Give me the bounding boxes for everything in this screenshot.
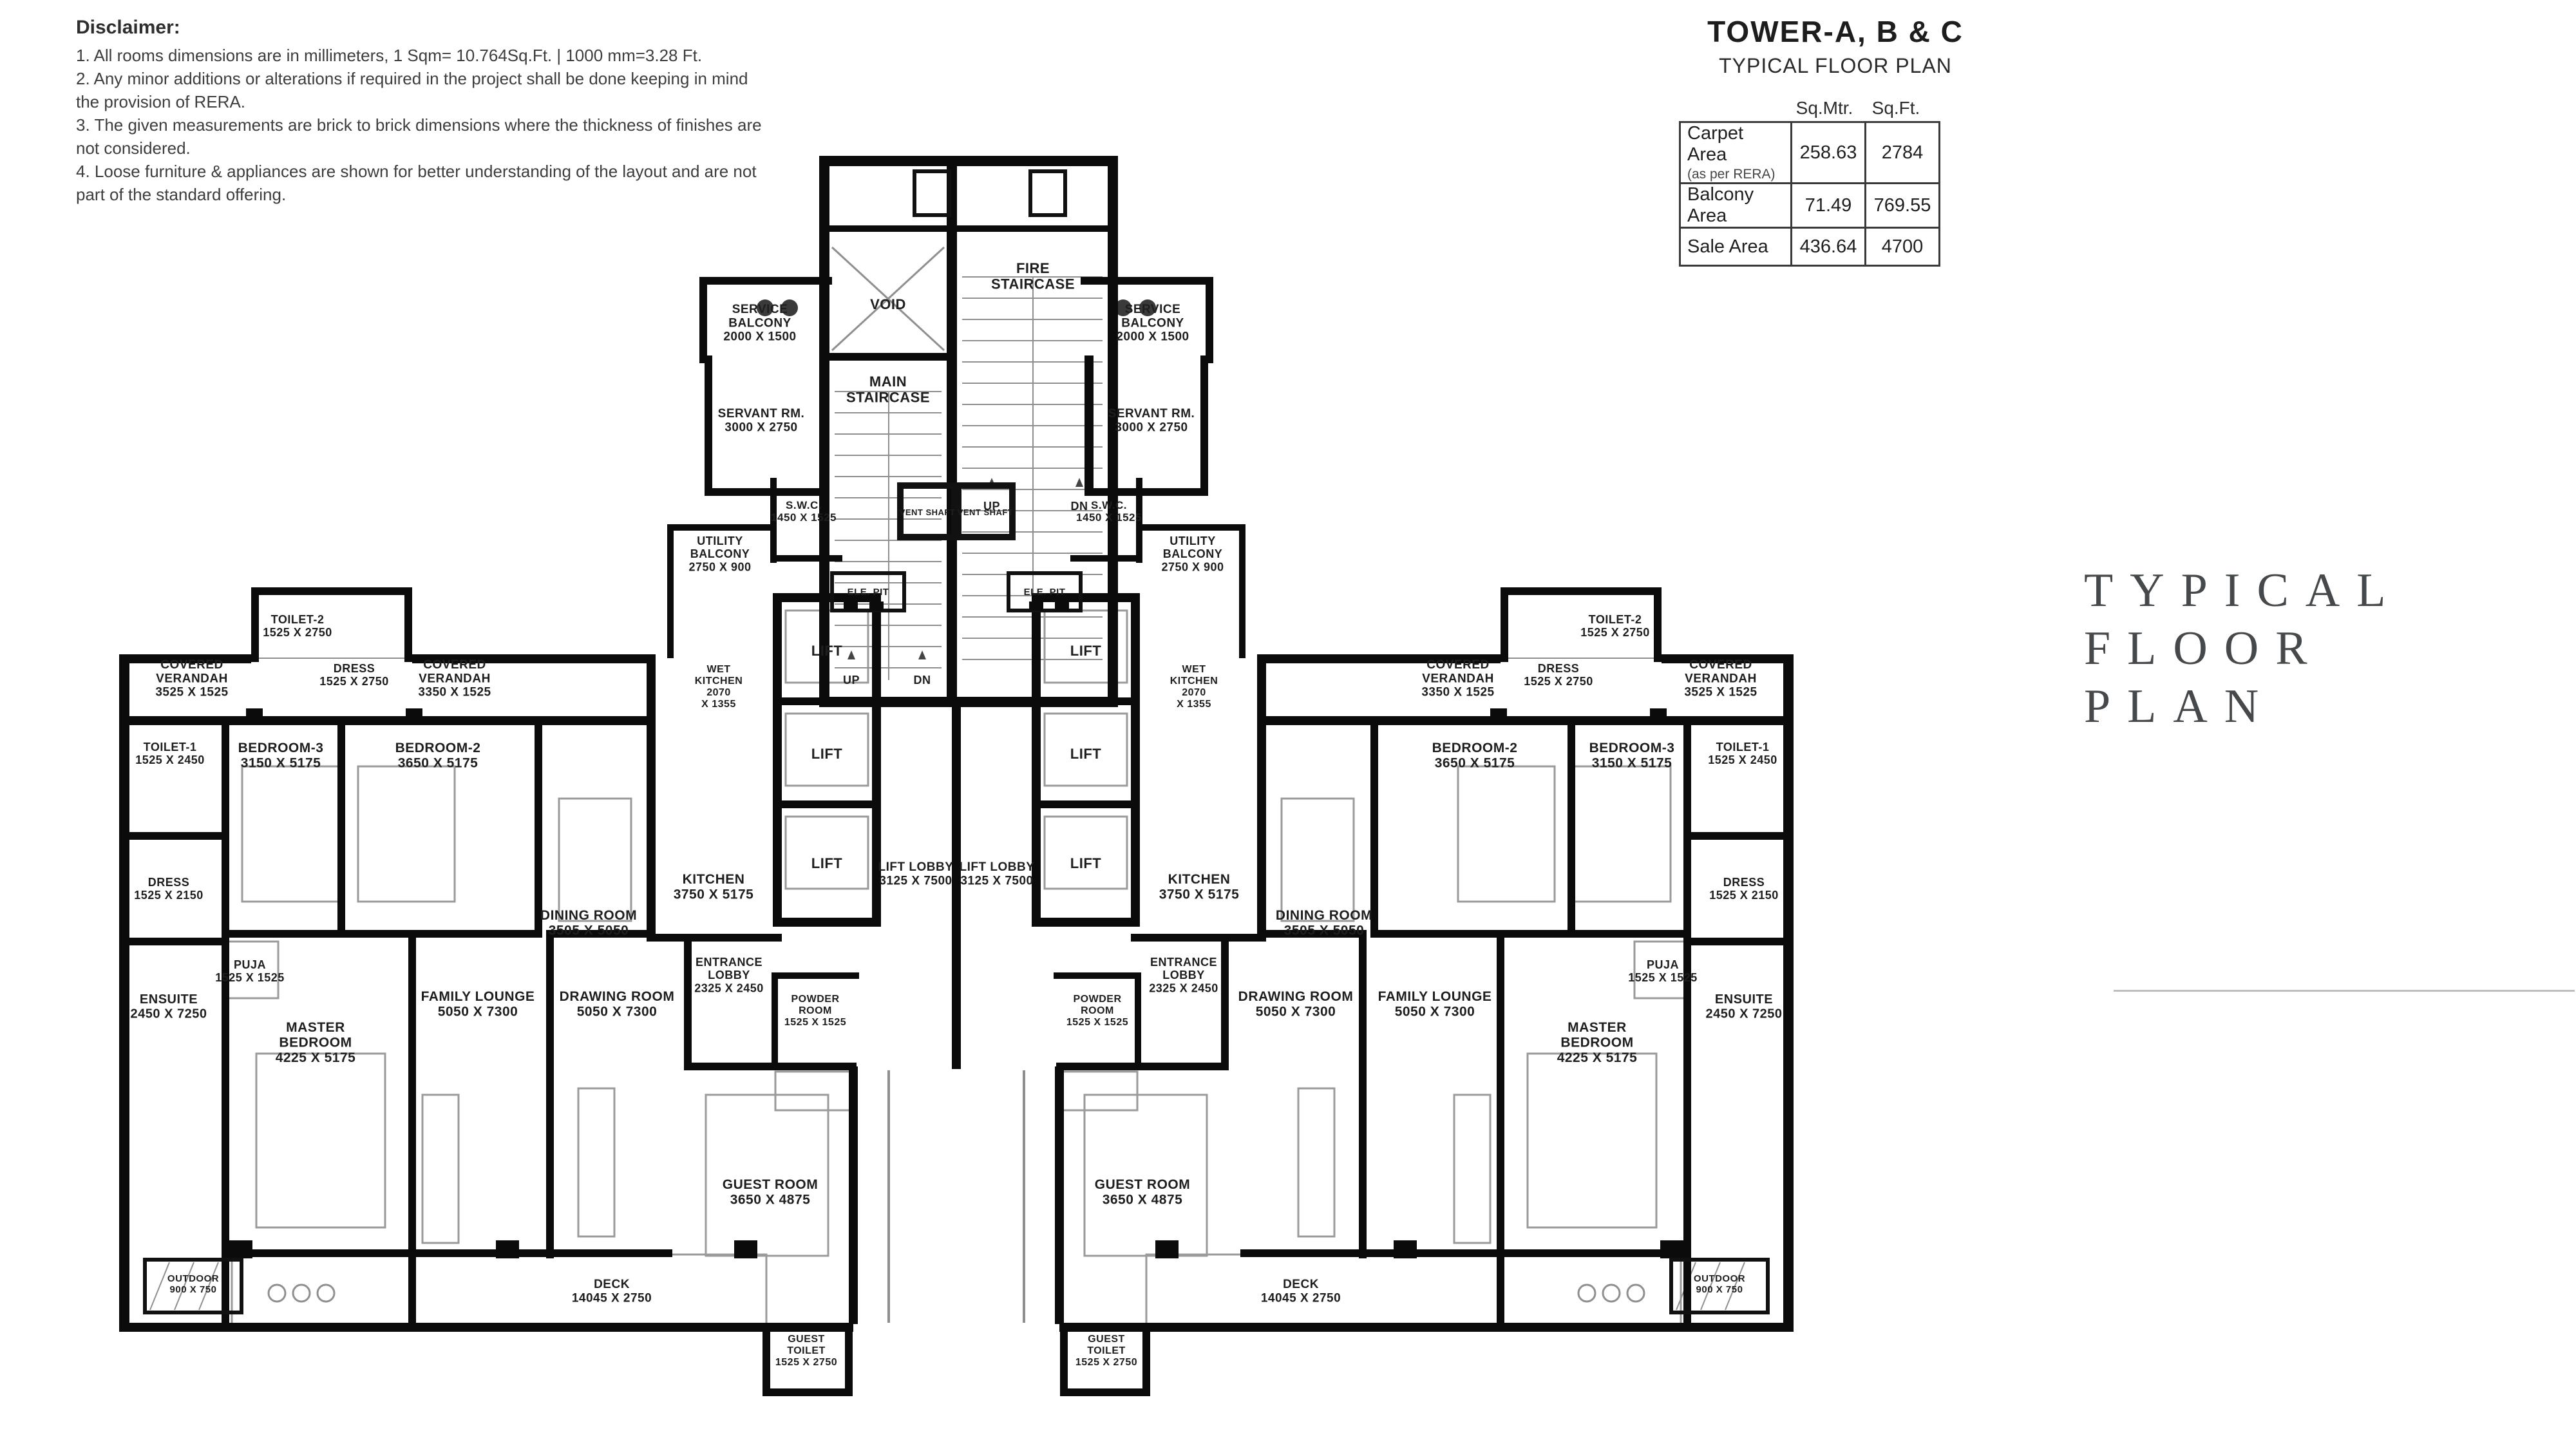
room-label: SERVANT RM.3000 X 2750 [1108,407,1195,434]
room-label: POWDERROOM1525 X 1525 [1066,994,1128,1028]
room-label: POWDERROOM1525 X 1525 [784,994,846,1028]
room-label: DRAWING ROOM5050 X 7300 [1238,989,1354,1019]
room-label: DINING ROOM3505 X 5050 [1276,908,1372,938]
room-label: UTILITYBALCONY2750 X 900 [1161,535,1224,573]
room-label: ENTRANCELOBBY2325 X 2450 [1149,956,1218,994]
room-label: UP [843,674,860,687]
room-label: SERVANT RM.3000 X 2750 [718,407,805,434]
room-label: DN [1071,500,1088,513]
room-label: ENTRANCELOBBY2325 X 2450 [694,956,764,994]
room-label: LIFT [1070,855,1101,871]
room-label: FAMILY LOUNGE5050 X 7300 [1378,989,1492,1019]
room-label: TOILET-11525 X 2450 [1708,741,1777,766]
room-label: BEDROOM-33150 X 5175 [1589,741,1675,771]
room-label: KITCHEN3750 X 5175 [674,872,754,902]
room-label: MASTERBEDROOM4225 X 5175 [276,1020,356,1065]
room-label: OUTDOOR900 X 750 [167,1273,219,1295]
room-label: LIFT [1070,643,1101,659]
room-label: VENT SHAFT [958,507,1014,517]
brochure-page: Disclaimer: 1. All rooms dimensions are … [0,0,2576,1449]
room-label: GUESTTOILET1525 X 2750 [775,1334,837,1368]
room-label: TOILET-21525 X 2750 [1580,613,1650,639]
room-label: FIRESTAIRCASE [991,260,1075,292]
room-label: ELE. PIT [1024,587,1066,598]
room-label: LIFT [811,643,842,659]
room-label: DRAWING ROOM5050 X 7300 [560,989,675,1019]
room-label: ENSUITE2450 X 7250 [131,992,207,1021]
room-label: LIFT [1070,746,1101,762]
room-label: DRESS1525 X 2750 [1524,662,1593,688]
room-label: UTILITYBALCONY2750 X 900 [688,535,751,573]
room-label: DRESS1525 X 2750 [319,662,389,688]
room-label: OUTDOOR900 X 750 [1694,1273,1745,1295]
room-label: BEDROOM-23650 X 5175 [1432,741,1518,771]
room-label: ELE. PIT [848,587,889,598]
room-label: GUEST ROOM3650 X 4875 [723,1177,819,1207]
room-label: DRESS1525 X 2150 [1709,876,1779,902]
room-label: BEDROOM-23650 X 5175 [395,741,481,771]
room-label: TOILET-11525 X 2450 [135,741,205,766]
room-label: COVEREDVERANDAH3525 X 1525 [155,658,228,699]
room-label: DRESS1525 X 2150 [134,876,204,902]
room-label: LIFT [811,746,842,762]
room-label: DN [914,674,931,687]
room-label: DECK14045 X 2750 [572,1278,652,1305]
room-label: DECK14045 X 2750 [1261,1278,1341,1305]
room-label: VENT SHAFT [900,507,956,517]
room-label: MASTERBEDROOM4225 X 5175 [1557,1020,1638,1065]
room-label: GUESTTOILET1525 X 2750 [1075,1334,1137,1368]
room-label: BEDROOM-33150 X 5175 [238,741,324,771]
room-label: MAINSTAIRCASE [846,374,930,406]
room-label: DINING ROOM3505 X 5050 [540,908,637,938]
room-label: KITCHEN3750 X 5175 [1159,872,1240,902]
floor-plan-svg: VOIDMAINSTAIRCASEFIRESTAIRCASEUPDNUPDNSE… [0,0,2576,1449]
room-label: TOILET-21525 X 2750 [263,613,332,639]
room-label: WETKITCHEN2070X 1355 [695,664,743,710]
room-label: FAMILY LOUNGE5050 X 7300 [421,989,535,1019]
room-label: COVEREDVERANDAH3350 X 1525 [418,658,491,699]
room-label: COVEREDVERANDAH3350 X 1525 [1421,658,1494,699]
room-label: WETKITCHEN2070X 1355 [1170,664,1218,710]
room-label: COVEREDVERANDAH3525 X 1525 [1684,658,1757,699]
room-label: LIFT LOBBY3125 X 7500 [878,860,954,887]
room-label: SERVICEBALCONY2000 X 1500 [1116,303,1189,344]
room-label: VOID [870,296,906,312]
room-label: SERVICEBALCONY2000 X 1500 [723,303,796,344]
room-label: LIFT LOBBY3125 X 7500 [960,860,1035,887]
room-label: GUEST ROOM3650 X 4875 [1095,1177,1191,1207]
room-label: ENSUITE2450 X 7250 [1706,992,1783,1021]
room-label: LIFT [811,855,842,871]
